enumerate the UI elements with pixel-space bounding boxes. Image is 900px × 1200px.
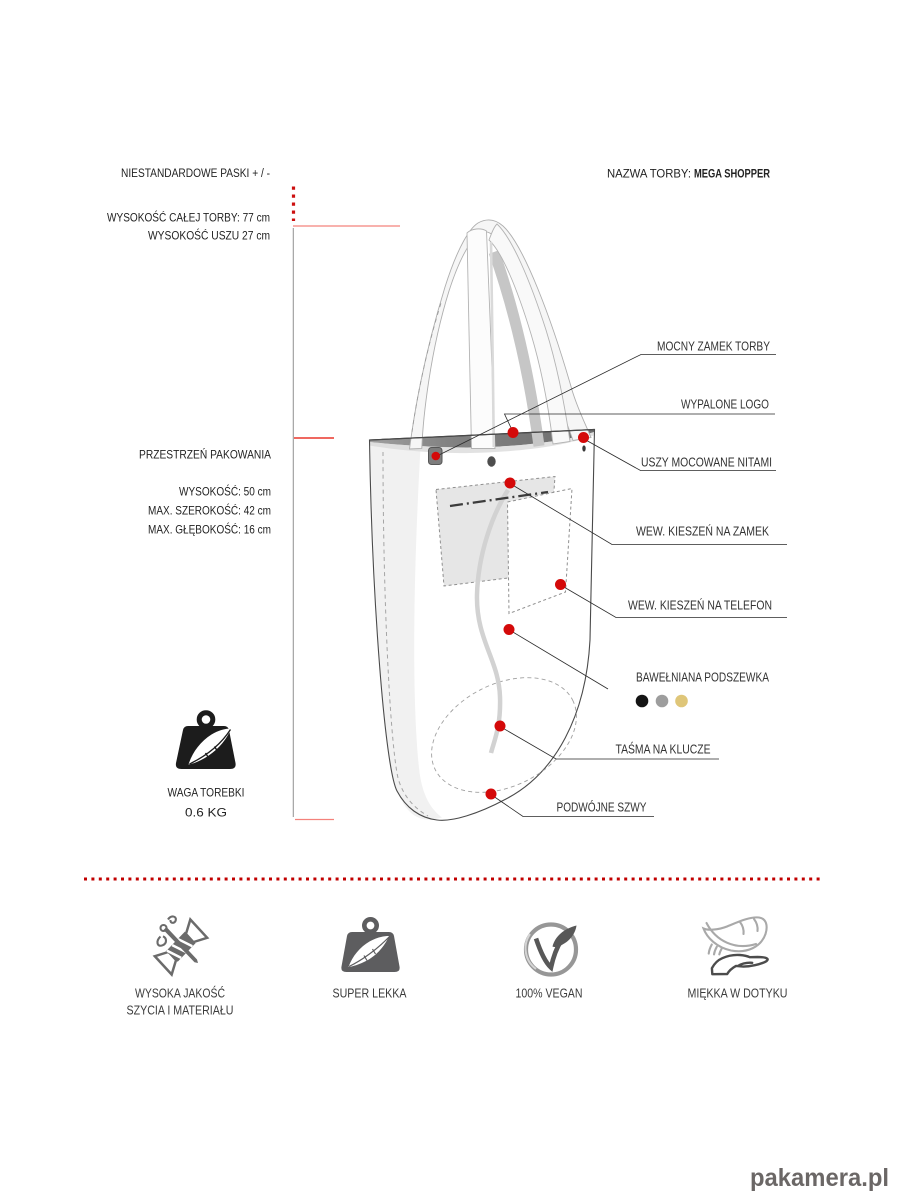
svg-text:WYSOKOŚĆ: 50 cm: WYSOKOŚĆ: 50 cm — [179, 484, 271, 499]
svg-text:WYPALONE LOGO: WYPALONE LOGO — [681, 398, 769, 412]
svg-text:MAX. SZEROKOŚĆ: 42 cm: MAX. SZEROKOŚĆ: 42 cm — [148, 503, 271, 518]
svg-text:WYSOKOŚĆ USZU 27 cm: WYSOKOŚĆ USZU 27 cm — [148, 228, 270, 243]
svg-text:PRZESTRZEŃ PAKOWANIA: PRZESTRZEŃ PAKOWANIA — [139, 447, 272, 462]
svg-text:pakamera.pl: pakamera.pl — [750, 1164, 889, 1192]
svg-text:SUPER LEKKA: SUPER LEKKA — [333, 987, 408, 1001]
svg-text:WYSOKOŚĆ CAŁEJ TORBY: 77 cm: WYSOKOŚĆ CAŁEJ TORBY: 77 cm — [107, 210, 270, 225]
svg-text:MEGA SHOPPER: MEGA SHOPPER — [694, 167, 770, 181]
svg-text:BAWEŁNIANA PODSZEWKA: BAWEŁNIANA PODSZEWKA — [636, 671, 769, 685]
svg-text:TAŚMA NA KLUCZE: TAŚMA NA KLUCZE — [616, 742, 711, 757]
svg-text:PODWÓJNE SZWY: PODWÓJNE SZWY — [557, 800, 647, 815]
svg-text:SZYCIA I MATERIAŁU: SZYCIA I MATERIAŁU — [127, 1004, 234, 1018]
svg-text:MIĘKKA W DOTYKU: MIĘKKA W DOTYKU — [688, 987, 788, 1001]
svg-text:MAX. GŁĘBOKOŚĆ: 16 cm: MAX. GŁĘBOKOŚĆ: 16 cm — [148, 522, 271, 537]
svg-text:NIESTANDARDOWE PASKI + / -: NIESTANDARDOWE PASKI + / - — [121, 166, 270, 180]
svg-text:WEW. KIESZEŃ NA TELEFON: WEW. KIESZEŃ NA TELEFON — [628, 598, 772, 613]
svg-text:0.6 KG: 0.6 KG — [185, 806, 227, 820]
svg-text:MOCNY ZAMEK TORBY: MOCNY ZAMEK TORBY — [657, 340, 770, 354]
svg-text:WYSOKA JAKOŚĆ: WYSOKA JAKOŚĆ — [135, 986, 225, 1001]
svg-text:NAZWA TORBY:: NAZWA TORBY: — [607, 167, 691, 181]
svg-text:USZY MOCOWANE NITAMI: USZY MOCOWANE NITAMI — [641, 456, 772, 470]
svg-text:WAGA TOREBKI: WAGA TOREBKI — [168, 786, 245, 800]
svg-text:100% VEGAN: 100% VEGAN — [516, 987, 583, 1001]
svg-text:WEW. KIESZEŃ NA ZAMEK: WEW. KIESZEŃ NA ZAMEK — [636, 524, 769, 539]
